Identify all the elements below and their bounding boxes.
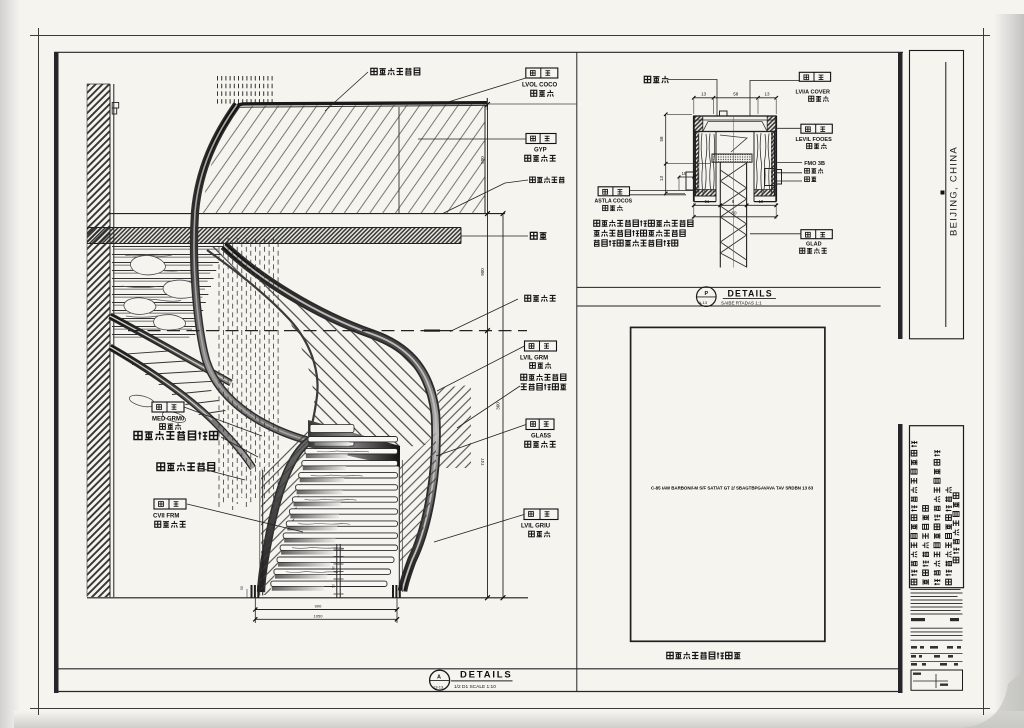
svg-text:1050: 1050	[314, 613, 324, 618]
svg-text:900: 900	[480, 268, 485, 276]
svg-text:13: 13	[659, 176, 664, 182]
svg-text:58: 58	[733, 91, 739, 96]
svg-text:13-13: 13-13	[433, 684, 444, 689]
svg-text:19: 19	[759, 199, 764, 204]
svg-text:51: 51	[705, 199, 710, 204]
svg-text:13: 13	[764, 91, 770, 96]
svg-text:LVI/A COVER: LVI/A COVER	[796, 90, 831, 96]
svg-text:LEVIL FOOES: LEVIL FOOES	[796, 137, 833, 143]
svg-text:ASTLA COCOS: ASTLA COCOS	[595, 199, 633, 205]
svg-text:P: P	[705, 291, 709, 297]
svg-text:GYP: GYP	[534, 148, 547, 154]
svg-text:13: 13	[701, 91, 707, 96]
svg-text:MED GRM0: MED GRM0	[152, 417, 185, 423]
svg-text:50: 50	[731, 211, 737, 216]
svg-text:360: 360	[496, 402, 501, 410]
svg-text:50: 50	[240, 586, 244, 590]
svg-text:19: 19	[682, 171, 687, 176]
svg-text:900: 900	[315, 604, 322, 609]
svg-text:DETAILS: DETAILS	[728, 288, 773, 298]
svg-text:GLA5S: GLA5S	[531, 434, 551, 440]
svg-text:SAIBE RTADAS 1:1: SAIBE RTADAS 1:1	[721, 301, 762, 306]
svg-text:LVIL GRM: LVIL GRM	[520, 356, 548, 362]
svg-text:C-85 IAW BARBONI/-M S/F SAT/AT: C-85 IAW BARBONI/-M S/F SAT/AT GT 2/ SBA…	[651, 485, 814, 490]
svg-text:500: 500	[480, 156, 485, 164]
svg-text:DETAILS: DETAILS	[460, 670, 513, 681]
svg-text:A: A	[437, 674, 441, 680]
svg-text:CVII FRM: CVII FRM	[153, 514, 179, 520]
svg-text:50: 50	[332, 566, 336, 570]
svg-text:LVOL COCO: LVOL COCO	[522, 83, 557, 89]
svg-text:1/2 D1 SCALE 1:10: 1/2 D1 SCALE 1:10	[454, 684, 496, 690]
svg-text:A-13: A-13	[699, 300, 708, 305]
svg-text:FMO 3B: FMO 3B	[804, 161, 825, 167]
svg-text:LVIL GRIU: LVIL GRIU	[521, 524, 550, 530]
svg-text:BEIJING, CHINA: BEIJING, CHINA	[949, 146, 960, 236]
svg-text:747: 747	[480, 458, 485, 466]
svg-text:50: 50	[332, 584, 336, 588]
svg-text:GLAD: GLAD	[806, 241, 822, 247]
svg-text:58: 58	[659, 136, 664, 142]
